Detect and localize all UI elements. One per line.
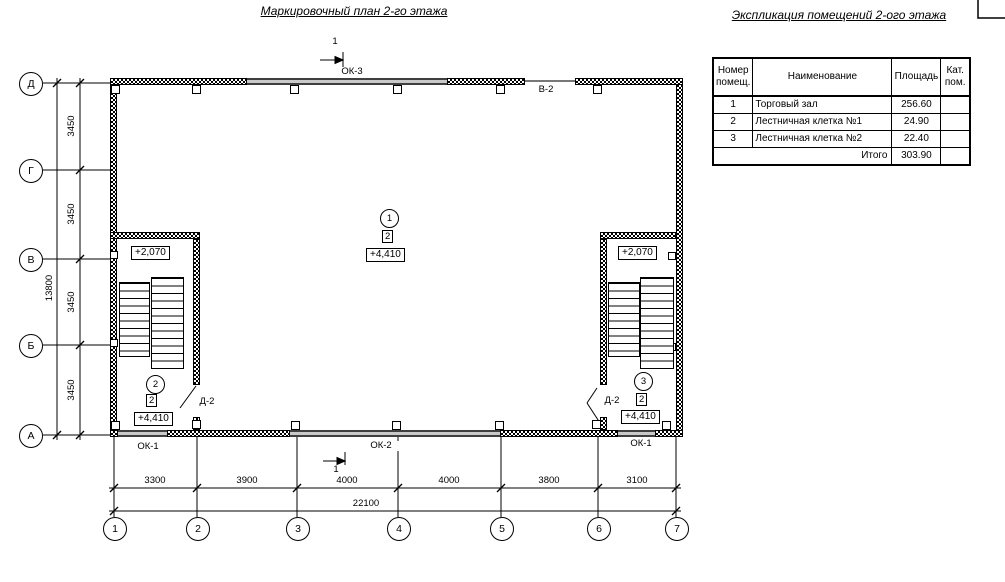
wall-bottom-1 — [110, 430, 118, 437]
column-mark — [111, 421, 120, 430]
axis-bubble-col: 2 — [186, 517, 210, 541]
opening-v2 — [525, 80, 575, 82]
column-mark — [393, 85, 402, 94]
window-ok2 — [290, 430, 500, 437]
stairwall-right-side — [600, 239, 607, 385]
level-mark-stair-left-upper: +2,070 — [131, 246, 170, 260]
axis-bubble-col: 5 — [490, 517, 514, 541]
level-mark-stair-right: +4,410 — [621, 410, 660, 424]
dim-vertical-total: 13800 — [45, 268, 55, 308]
column-mark — [290, 85, 299, 94]
cell-cat — [941, 131, 970, 148]
header-room-number: Номер помещ. — [713, 58, 753, 96]
cell-cat — [941, 114, 970, 131]
window-ok1-right — [618, 430, 655, 437]
axis-bubble-row: Д — [19, 72, 43, 96]
stairwall-left-side — [193, 239, 200, 385]
table-row: 1 Торговый зал 256.60 — [713, 96, 970, 114]
level-mark-hall: +4,410 — [366, 248, 405, 262]
wall-bottom-4 — [655, 430, 683, 437]
cell-cat — [941, 148, 970, 166]
dim-vertical-seg: 3450 — [67, 199, 77, 229]
axis-bubble-row: А — [19, 424, 43, 448]
axis-bubble-col: 4 — [387, 517, 411, 541]
dim-horizontal-seg: 4000 — [424, 476, 474, 486]
header-name: Наименование — [753, 58, 892, 96]
wall-top-1 — [110, 78, 247, 85]
cell-name: Лестничная клетка №1 — [753, 114, 892, 131]
dim-horizontal-seg: 3300 — [130, 476, 180, 486]
axis-bubble-col: 6 — [587, 517, 611, 541]
stair-flight — [640, 277, 674, 369]
cell-num: 3 — [713, 131, 753, 148]
mark-d2-right: Д-2 — [598, 396, 626, 406]
room-number-stair-right: 3 — [634, 372, 653, 391]
wall-right — [676, 78, 683, 437]
room-number-hall: 1 — [380, 209, 399, 228]
drawing-sheet: Маркировочный план 2-го этажа Экспликаци… — [0, 0, 1005, 582]
wall-bottom-3 — [500, 430, 618, 437]
axis-bubble-row: Г — [19, 159, 43, 183]
explication-title: Экспликация помещений 2-ого этажа — [712, 8, 966, 22]
room-category-stair-left: 2 — [146, 394, 157, 407]
column-mark — [192, 420, 201, 429]
dim-vertical-seg: 3450 — [67, 111, 77, 141]
explication-table: Номер помещ. Наименование Площадь Кат. п… — [712, 57, 971, 166]
wall-top-3 — [575, 78, 683, 85]
table-total-row: Итого 303.90 — [713, 148, 970, 166]
wall-bottom-2 — [167, 430, 290, 437]
level-mark-stair-right-upper: +2,070 — [618, 246, 657, 260]
mark-ok2: ОК-2 — [359, 441, 403, 451]
room-category-hall: 2 — [382, 230, 393, 243]
room-category-stair-right: 2 — [636, 393, 647, 406]
mark-ok3: ОК-3 — [330, 67, 374, 77]
dim-horizontal-seg: 3100 — [612, 476, 662, 486]
dim-horizontal-seg: 4000 — [322, 476, 372, 486]
column-mark — [291, 421, 300, 430]
plan-title: Маркировочный план 2-го этажа — [234, 4, 474, 18]
mark-ok1-right: ОК-1 — [619, 439, 663, 449]
section-number-top: 1 — [325, 37, 345, 47]
stair-flight — [151, 277, 184, 369]
column-mark — [110, 339, 118, 347]
room-number-stair-left: 2 — [146, 375, 165, 394]
column-mark — [592, 420, 601, 429]
window-ok3 — [247, 78, 447, 85]
total-label: Итого — [713, 148, 892, 166]
level-mark-stair-left: +4,410 — [134, 412, 173, 426]
column-mark — [495, 421, 504, 430]
wall-top-2 — [447, 78, 525, 85]
axis-bubble-col: 3 — [286, 517, 310, 541]
cell-cat — [941, 96, 970, 114]
axis-bubble-col: 7 — [665, 517, 689, 541]
cell-name: Лестничная клетка №2 — [753, 131, 892, 148]
total-value: 303.90 — [892, 148, 941, 166]
header-category: Кат. пом. — [941, 58, 970, 96]
cell-num: 1 — [713, 96, 753, 114]
cell-area: 22.40 — [892, 131, 941, 148]
dim-horizontal-seg: 3900 — [222, 476, 272, 486]
mark-d2-left: Д-2 — [193, 397, 221, 407]
axis-bubble-col: 1 — [103, 517, 127, 541]
stairwall-left-top — [110, 232, 200, 239]
column-mark — [593, 85, 602, 94]
stairwall-right-stub — [600, 417, 607, 430]
column-mark — [111, 85, 120, 94]
column-mark — [110, 251, 118, 259]
column-mark — [662, 421, 671, 430]
cell-num: 2 — [713, 114, 753, 131]
window-ok1-left — [118, 430, 167, 437]
cell-name: Торговый зал — [753, 96, 892, 114]
cell-area: 256.60 — [892, 96, 941, 114]
cell-area: 24.90 — [892, 114, 941, 131]
header-area: Площадь — [892, 58, 941, 96]
section-number-bottom: 1 — [326, 465, 346, 475]
stair-flight — [119, 282, 150, 357]
mark-ok1-left: ОК-1 — [126, 442, 170, 452]
column-mark — [668, 252, 676, 260]
axis-bubble-row: Б — [19, 334, 43, 358]
stairwall-right-top — [600, 232, 676, 239]
axis-bubble-row: В — [19, 248, 43, 272]
dim-vertical-seg: 3450 — [67, 287, 77, 317]
table-row: 3 Лестничная клетка №2 22.40 — [713, 131, 970, 148]
dim-vertical-seg: 3450 — [67, 375, 77, 405]
column-mark — [496, 85, 505, 94]
dim-horizontal-total: 22100 — [336, 499, 396, 509]
column-mark — [392, 421, 401, 430]
table-header-row: Номер помещ. Наименование Площадь Кат. п… — [713, 58, 970, 96]
mark-v2: В-2 — [528, 85, 564, 95]
column-mark — [192, 85, 201, 94]
table-row: 2 Лестничная клетка №1 24.90 — [713, 114, 970, 131]
dim-horizontal-seg: 3800 — [524, 476, 574, 486]
stair-flight — [608, 282, 640, 357]
